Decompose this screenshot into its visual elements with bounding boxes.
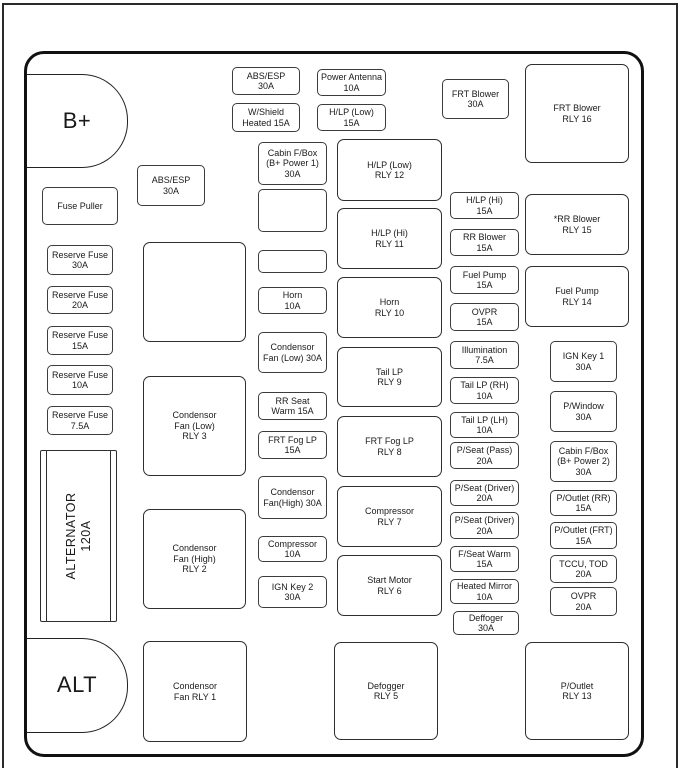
relay-horn-rly10: Horn RLY 10 (337, 277, 442, 338)
fuse-reserve-15a: Reserve Fuse 15A (47, 326, 113, 355)
fuse-reserve-30a: Reserve Fuse 30A (47, 245, 113, 275)
fuse-tccu-tod-20a: TCCU, TOD 20A (550, 555, 617, 583)
fuse-reserve-7-5a: Reserve Fuse 7.5A (47, 406, 113, 435)
alternator-label: ALTERNATOR 120A (64, 456, 94, 616)
alternator-inner-line-right (110, 451, 111, 621)
relay-condensor-fan-low-rly3: Condensor Fan (Low) RLY 3 (143, 376, 246, 476)
fuse-deffoger-30a: Deffoger 30A (453, 611, 519, 635)
fuse-illumination-7-5a: Illumination 7.5A (450, 341, 519, 369)
fuse-reserve-10a: Reserve Fuse 10A (47, 365, 113, 395)
fuse-condensor-fan-high-30a: Condensor Fan(High) 30A (258, 476, 327, 519)
fuse-wshield-heated-15a: W/Shield Heated 15A (232, 103, 300, 132)
fuse-fuel-pump-15a: Fuel Pump 15A (450, 266, 519, 294)
empty-relay-slot (143, 242, 246, 342)
fuse-cabin-fbox-b-power1-30a: Cabin F/Box (B+ Power 1) 30A (258, 142, 327, 185)
fuse-horn-10a: Horn 10A (258, 287, 327, 314)
fuse-cabin-fbox-b-power2-30a: Cabin F/Box (B+ Power 2) 30A (550, 441, 617, 482)
fuse-abs-esp-30a-second: ABS/ESP 30A (137, 165, 205, 206)
fuse-f-seat-warm-15a: F/Seat Warm 15A (450, 546, 519, 572)
fuse-ovpr-20a: OVPR 20A (550, 587, 617, 616)
relay-compressor-rly7: Compressor RLY 7 (337, 486, 442, 547)
fuse-ign-key-1-30a: IGN Key 1 30A (550, 341, 617, 382)
fuse-p-seat-pass-20a: P/Seat (Pass) 20A (450, 442, 519, 469)
relay-hlp-low-rly12: H/LP (Low) RLY 12 (337, 139, 442, 201)
empty-slot-1 (258, 189, 327, 232)
fuse-p-outlet-rr-15a: P/Outlet (RR) 15A (550, 490, 617, 516)
fuse-rr-seat-warm-15a: RR Seat Warm 15A (258, 392, 327, 420)
alternator-fuse: ALTERNATOR 120A (40, 450, 117, 622)
fuse-hlp-low-15a: H/LP (Low) 15A (317, 104, 386, 131)
fuse-p-seat-driver-20a-1: P/Seat (Driver) 20A (450, 480, 519, 506)
relay-tail-lp-rly9: Tail LP RLY 9 (337, 347, 442, 407)
empty-slot-2 (258, 250, 327, 273)
fuse-box-diagram: B+ ALT ALTERNATOR 120A ABS/ESP 30A W/Shi… (0, 0, 687, 768)
fuse-ign-key-2-30a: IGN Key 2 30A (258, 576, 327, 608)
fuse-abs-esp-30a-top: ABS/ESP 30A (232, 67, 300, 95)
fuse-p-seat-driver-20a-2: P/Seat (Driver) 20A (450, 512, 519, 539)
fuse-tail-lp-rh-10a: Tail LP (RH) 10A (450, 377, 519, 404)
fuse-rr-blower-15a: RR Blower 15A (450, 229, 519, 256)
fuse-p-outlet-frt-15a: P/Outlet (FRT) 15A (550, 522, 617, 549)
fuse-compressor-10a: Compressor 10A (258, 536, 327, 562)
alt-terminal: ALT (27, 638, 128, 733)
alternator-inner-line-left (46, 451, 47, 621)
relay-p-outlet-rly13: P/Outlet RLY 13 (525, 642, 629, 740)
relay-frt-fog-lp-rly8: FRT Fog LP RLY 8 (337, 416, 442, 477)
fuse-puller: Fuse Puller (42, 187, 118, 225)
fuse-heated-mirror-10a: Heated Mirror 10A (450, 579, 519, 604)
fuse-ovpr-15a: OVPR 15A (450, 303, 519, 331)
relay-defogger-rly5: Defogger RLY 5 (334, 642, 438, 740)
fuse-power-antenna-10a: Power Antenna 10A (317, 69, 386, 96)
fuse-tail-lp-lh-10a: Tail LP (LH) 10A (450, 412, 519, 438)
fuse-frt-fog-lp-15a: FRT Fog LP 15A (258, 431, 327, 459)
fuse-p-window-30a: P/Window 30A (550, 391, 617, 432)
relay-condensor-fan-rly1: Condensor Fan RLY 1 (143, 641, 247, 742)
fuse-frt-blower-30a: FRT Blower 30A (442, 79, 509, 119)
relay-condensor-fan-high-rly2: Condensor Fan (High) RLY 2 (143, 509, 246, 609)
relay-rr-blower-rly15: *RR Blower RLY 15 (525, 194, 629, 255)
relay-start-motor-rly6: Start Motor RLY 6 (337, 555, 442, 616)
fuse-reserve-20a: Reserve Fuse 20A (47, 286, 113, 314)
b-plus-terminal: B+ (27, 74, 128, 168)
fuse-hlp-hi-15a: H/LP (Hi) 15A (450, 192, 519, 219)
relay-hlp-hi-rly11: H/LP (Hi) RLY 11 (337, 208, 442, 269)
relay-fuel-pump-rly14: Fuel Pump RLY 14 (525, 266, 629, 327)
fuse-condensor-fan-low-30a: Condensor Fan (Low) 30A (258, 332, 327, 373)
relay-frt-blower-rly16: FRT Blower RLY 16 (525, 64, 629, 163)
